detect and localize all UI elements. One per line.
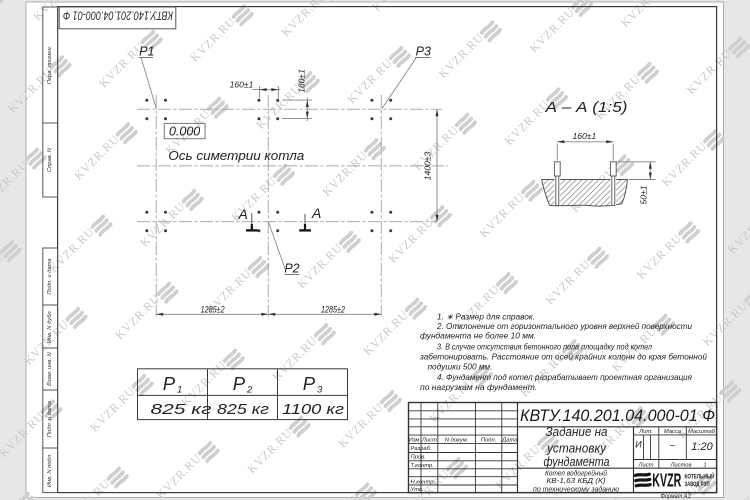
svg-text:1100 кг: 1100 кг: [282, 401, 345, 418]
svg-text:по нагрузкам на фундамент.: по нагрузкам на фундамент.: [420, 382, 537, 392]
svg-text:0.000: 0.000: [169, 124, 200, 138]
svg-text:КВТУ.140.201.04.000-01 Ф: КВТУ.140.201.04.000-01 Ф: [63, 9, 173, 21]
svg-text:Лист: Лист: [421, 438, 437, 444]
svg-text:–: –: [669, 440, 676, 450]
svg-text:Р1: Р1: [139, 44, 154, 58]
svg-text:КВ-1,63 КБД (К): КВ-1,63 КБД (К): [547, 478, 606, 485]
svg-text:Подп.: Подп.: [481, 438, 496, 444]
svg-text:N докум.: N докум.: [445, 438, 468, 444]
svg-text:Разраб.: Разраб.: [411, 446, 432, 452]
svg-text:50±1: 50±1: [639, 185, 649, 204]
svg-text:1285±2: 1285±2: [321, 305, 346, 315]
svg-text:1285±2: 1285±2: [201, 305, 226, 315]
svg-text:А – А (1:5): А – А (1:5): [544, 99, 627, 116]
svg-text:Масса: Масса: [664, 429, 682, 435]
svg-text:Подп. и дата: Подп. и дата: [47, 400, 53, 437]
svg-text:подушки 500 мм.: подушки 500 мм.: [428, 362, 493, 372]
svg-text:1: 1: [703, 462, 706, 468]
svg-text:1:20: 1:20: [691, 441, 713, 453]
svg-text:Инв. N подл.: Инв. N подл.: [47, 453, 53, 487]
svg-text:160±1: 160±1: [230, 80, 254, 90]
svg-text:А: А: [238, 206, 248, 222]
svg-text:825 кг: 825 кг: [151, 401, 213, 418]
svg-text:4. Фундамент под котел разраба: 4. Фундамент под котел разрабатывает про…: [437, 372, 692, 382]
svg-text:КОТЕЛЬНЫЙ: КОТЕЛЬНЫЙ: [685, 473, 715, 481]
svg-text:КВТУ.140.201.04.000-01 Ф: КВТУ.140.201.04.000-01 Ф: [520, 406, 715, 425]
svg-text:160±1: 160±1: [572, 131, 596, 141]
svg-text:Лист: Лист: [638, 462, 654, 468]
svg-text:Утв.: Утв.: [410, 487, 424, 493]
svg-text:фундамента: фундамента: [544, 454, 610, 469]
svg-text:160±1: 160±1: [297, 69, 307, 93]
svg-text:забетонировать. Расстояние от: забетонировать. Расстояние от осей крайн…: [419, 352, 707, 362]
svg-text:Задание на: Задание на: [546, 424, 608, 439]
svg-text:Масштаб: Масштаб: [688, 429, 716, 435]
svg-text:Пров.: Пров.: [411, 455, 426, 461]
svg-text:Изм.: Изм.: [409, 438, 421, 444]
svg-text:Котел водогрейный: Котел водогрейный: [545, 469, 607, 477]
svg-text:Подп. и дата: Подп. и дата: [47, 258, 53, 295]
svg-text:Перв. примен.: Перв. примен.: [47, 46, 53, 85]
svg-text:Р3: Р3: [416, 44, 431, 58]
svg-text:2. Отклонение от горизонтально: 2. Отклонение от горизонтального уровня …: [436, 321, 692, 331]
svg-text:Т.контр.: Т.контр.: [411, 463, 434, 469]
svg-text:ЗАВОД РЭП: ЗАВОД РЭП: [685, 482, 710, 488]
svg-text:Справ. N: Справ. N: [47, 147, 53, 172]
svg-text:1400±3: 1400±3: [423, 151, 433, 180]
svg-text:Лит.: Лит.: [638, 429, 653, 435]
svg-text:KVZR: KVZR: [652, 471, 681, 491]
svg-text:3. В случае отсутствия бетонно: 3. В случае отсутствия бетонного пола пл…: [437, 341, 652, 351]
svg-text:по техническому заданию: по техническому заданию: [533, 485, 620, 493]
svg-text:Ось симетрии котла: Ось симетрии котла: [168, 148, 304, 163]
svg-text:фундамента не более 10 мм.: фундамента не более 10 мм.: [420, 331, 536, 341]
svg-text:Листов: Листов: [669, 462, 691, 468]
svg-text:Н.контр.: Н.контр.: [411, 479, 436, 485]
svg-text:А: А: [311, 205, 321, 221]
svg-text:Р2: Р2: [284, 261, 299, 275]
svg-text:Формат А3: Формат А3: [661, 493, 691, 500]
svg-text:И: И: [635, 440, 642, 450]
svg-text:825 кг: 825 кг: [217, 401, 270, 418]
svg-text:Дата: Дата: [501, 438, 518, 444]
svg-text:Взам. инв. N: Взам. инв. N: [47, 351, 53, 386]
svg-text:1. ∗ Размер для справок.: 1. ∗ Размер для справок.: [437, 312, 535, 322]
svg-text:Инв. N дубл.: Инв. N дубл.: [47, 310, 53, 344]
